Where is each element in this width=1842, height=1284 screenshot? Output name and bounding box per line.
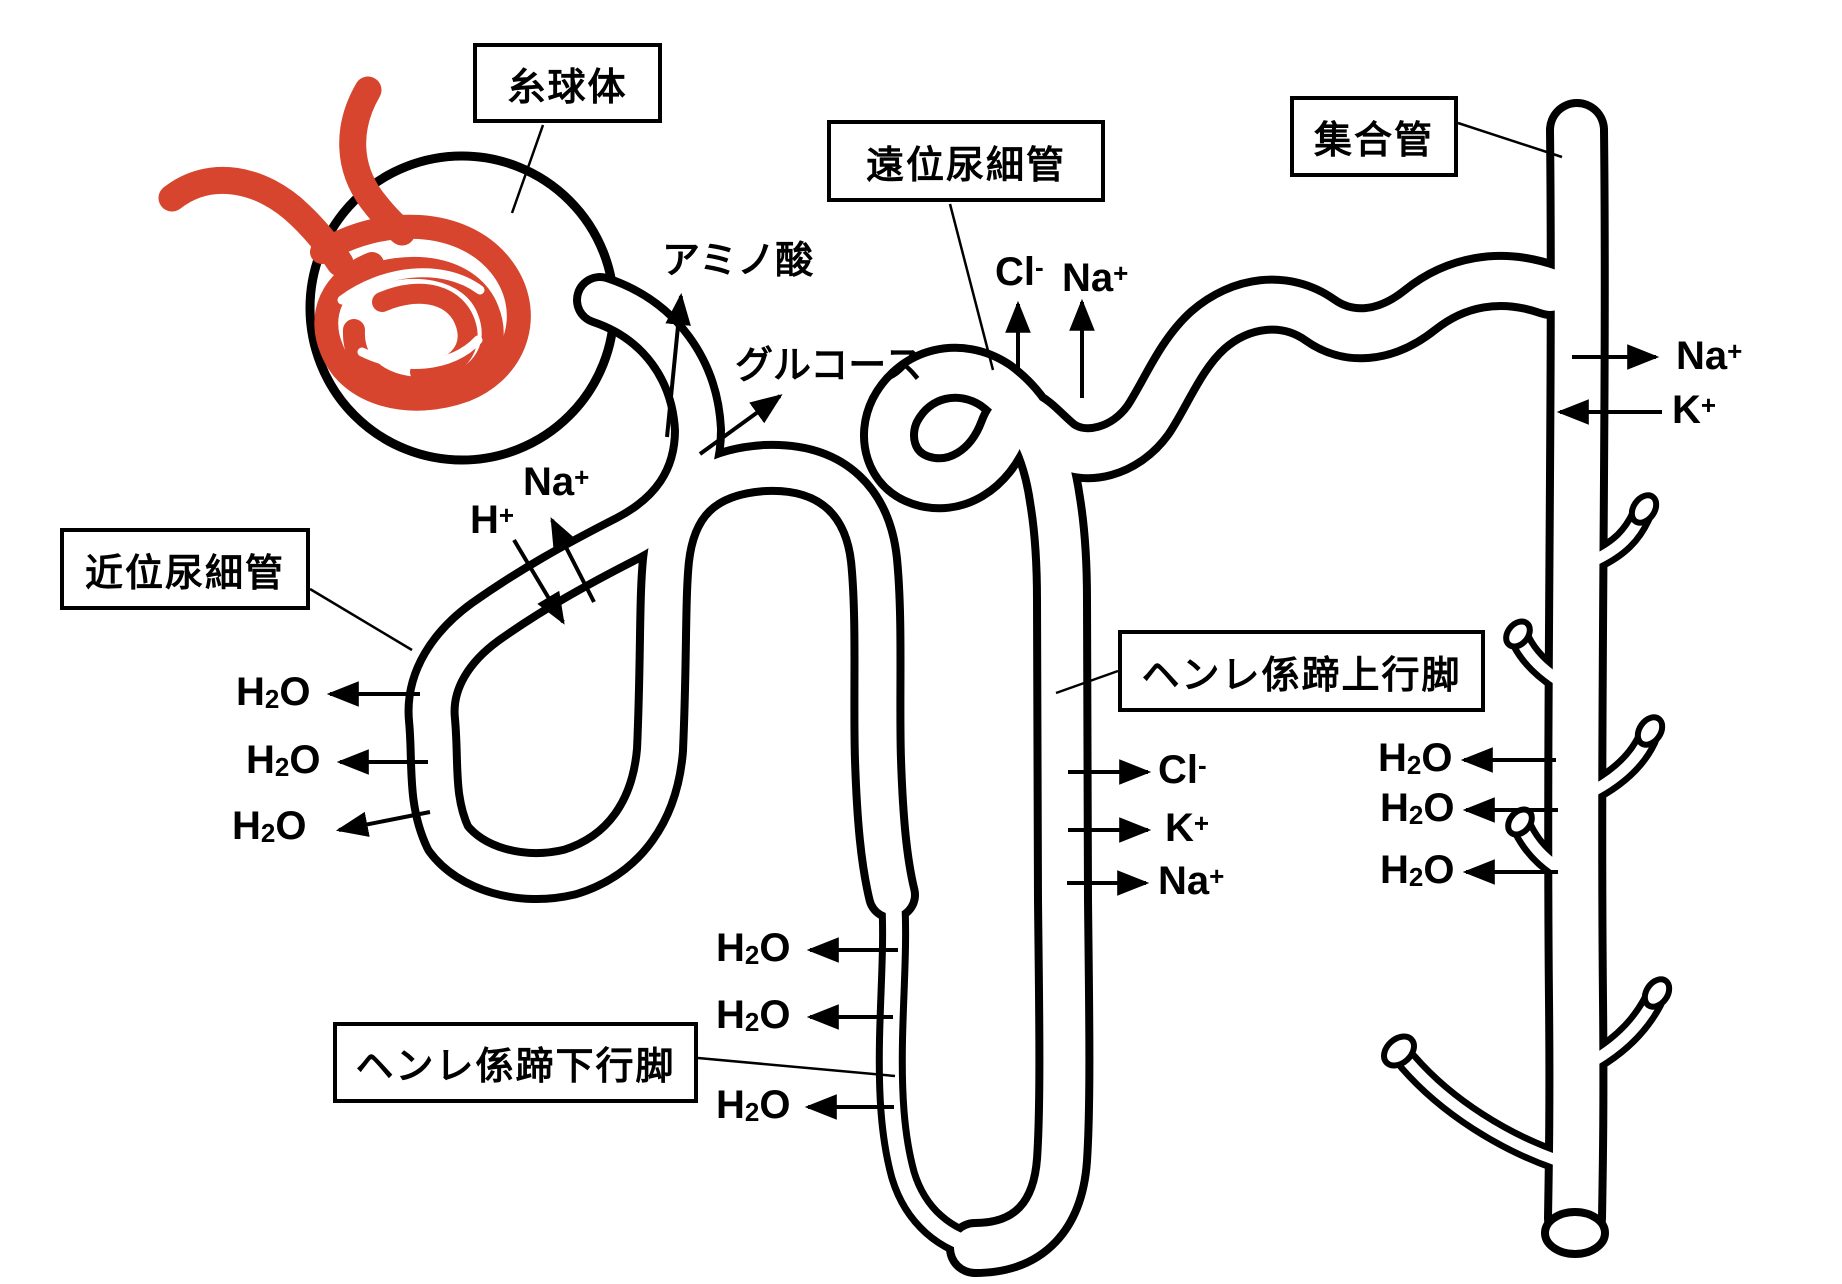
h2o-bottom-label-3: H2O: [716, 1085, 790, 1125]
branch-5-opening: [1640, 975, 1674, 1012]
proximal-leader: [310, 589, 412, 650]
amino-acid-label: アミノ酸: [662, 242, 813, 280]
h-proximal-label: H+: [470, 500, 514, 540]
collecting-duct-label-box: 集合管: [1290, 96, 1458, 177]
nephron-diagram: 糸球体 近位尿細管 遠位尿細管 集合管 ヘンレ係蹄上行脚 ヘンレ係蹄下行脚 アミ…: [0, 0, 1842, 1284]
h2o-left-label-2: H2O: [246, 740, 320, 780]
branch-3-opening: [1633, 713, 1667, 750]
h2o-left-label-1: H2O: [236, 672, 310, 712]
cl-distal-label: Cl-: [995, 252, 1044, 292]
na-collecting-label: Na+: [1676, 336, 1742, 376]
k-collecting-label: K+: [1672, 390, 1716, 430]
distal-tubule-label-box: 遠位尿細管: [827, 120, 1105, 202]
h2o-bottom-label-1: H2O: [716, 928, 790, 968]
h2o-right-label-2: H2O: [1380, 788, 1454, 828]
henle-descending-leader: [698, 1058, 895, 1076]
collecting-duct-branch-6: [1408, 1062, 1556, 1160]
h2o-right-label-3: H2O: [1380, 850, 1454, 890]
proximal-tubule-label: 近位尿細管: [85, 542, 285, 597]
henle-ascending-label: ヘンレ係蹄上行脚: [1141, 644, 1461, 699]
cl-ascending-label: Cl-: [1158, 750, 1207, 790]
na-distal-label: Na+: [1062, 258, 1128, 298]
henle-descending-label: ヘンレ係蹄下行脚: [355, 1035, 675, 1090]
collecting-duct-open-end: [1545, 1212, 1605, 1254]
h2o-right-label-1: H2O: [1378, 738, 1452, 778]
henle-descending-label-box: ヘンレ係蹄下行脚: [333, 1022, 698, 1103]
glucose-label: グルコース: [735, 347, 922, 385]
branch-1-opening: [1627, 491, 1661, 528]
na-ascending-label: Na+: [1158, 861, 1224, 901]
collecting-duct-label: 集合管: [1314, 109, 1434, 164]
k-ascending-label: K+: [1165, 808, 1209, 848]
glomerulus-capillaries: [172, 90, 519, 399]
na-proximal-label: Na+: [523, 462, 589, 502]
glomerulus-label-box: 糸球体: [473, 43, 662, 123]
henle-ascending-label-box: ヘンレ係蹄上行脚: [1118, 630, 1485, 712]
distal-tubule-label: 遠位尿細管: [866, 134, 1066, 189]
h2o-bottom-label-2: H2O: [716, 995, 790, 1035]
glomerulus-label: 糸球体: [507, 56, 627, 111]
h2o-left-label-3: H2O: [232, 806, 306, 846]
proximal-tubule-label-box: 近位尿細管: [60, 528, 310, 610]
